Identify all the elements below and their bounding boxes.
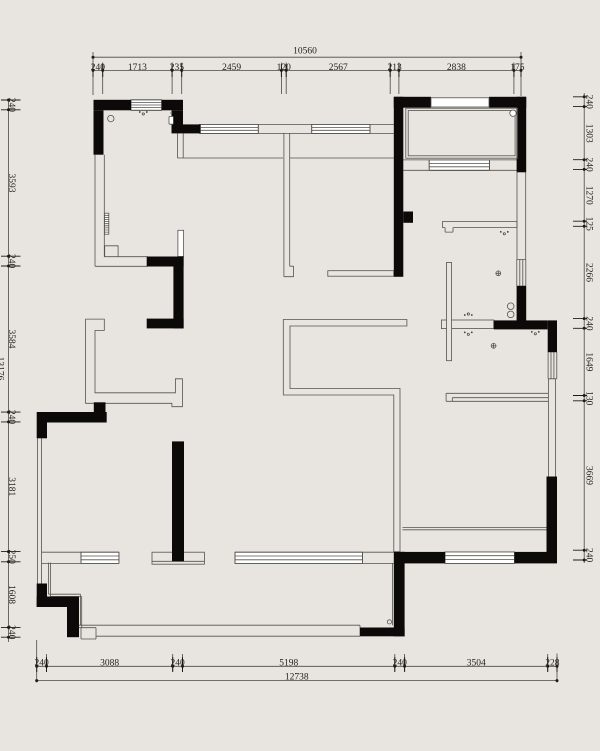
svg-text:3593: 3593	[6, 174, 16, 193]
svg-text:5198: 5198	[279, 659, 298, 669]
svg-text:3504: 3504	[467, 659, 486, 669]
svg-text:2567: 2567	[329, 63, 348, 73]
svg-text:2266: 2266	[583, 263, 593, 282]
svg-text:1303: 1303	[583, 124, 593, 143]
svg-text:1608: 1608	[6, 585, 16, 604]
svg-text:3088: 3088	[100, 659, 119, 669]
svg-text:1649: 1649	[583, 352, 593, 371]
svg-text:125: 125	[583, 217, 593, 232]
svg-text:3181: 3181	[6, 477, 16, 496]
svg-text:2838: 2838	[447, 63, 466, 73]
svg-text:12738: 12738	[285, 673, 309, 683]
svg-text:3669: 3669	[583, 466, 593, 485]
svg-text:1713: 1713	[128, 63, 147, 73]
svg-text:130: 130	[583, 391, 593, 406]
svg-text:175: 175	[510, 63, 525, 73]
svg-text:1270: 1270	[583, 186, 593, 205]
svg-text:3584: 3584	[6, 330, 16, 349]
svg-text:2459: 2459	[222, 63, 241, 73]
svg-text:10560: 10560	[293, 47, 317, 57]
svg-text:13176: 13176	[0, 357, 5, 381]
svg-text:120: 120	[277, 63, 292, 73]
